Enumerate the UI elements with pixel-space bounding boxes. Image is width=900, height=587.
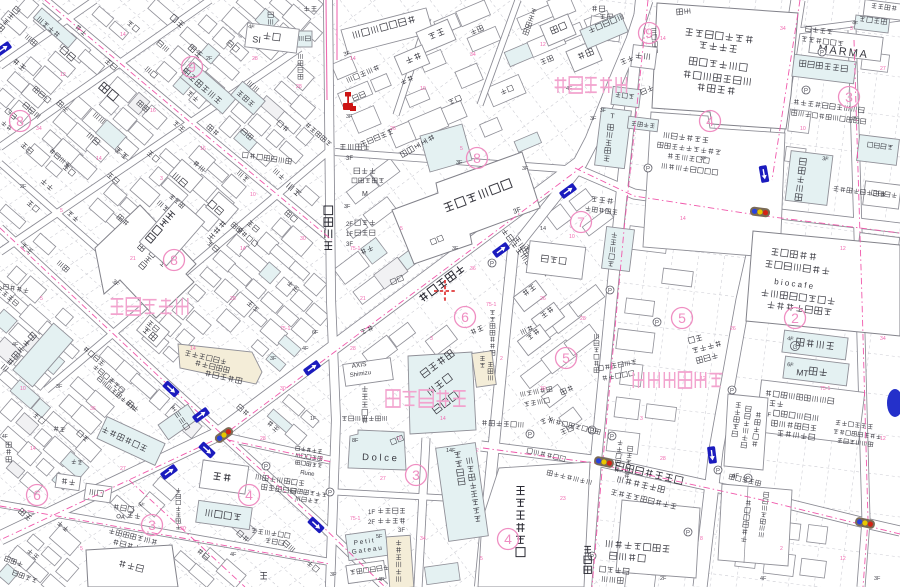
svg-text:3F: 3F [600,108,606,114]
svg-text:14: 14 [540,226,546,232]
svg-text:8F: 8F [352,438,359,444]
svg-text:10: 10 [420,86,426,92]
svg-text:14: 14 [680,216,686,222]
svg-text:14: 14 [240,246,246,252]
svg-text:21: 21 [360,296,366,302]
svg-text:8: 8 [170,252,178,268]
svg-text:28: 28 [660,456,666,462]
svg-text:2F: 2F [346,222,353,228]
svg-text:4F: 4F [378,577,385,583]
svg-text:P: P [264,463,268,470]
svg-text:G: G [793,345,798,351]
svg-text:3: 3 [148,517,156,533]
svg-text:P: P [746,475,750,482]
svg-text:16: 16 [200,146,206,152]
svg-text:P: P [686,529,690,536]
svg-text:3: 3 [850,26,853,32]
svg-text:4: 4 [245,487,253,503]
svg-text:30: 30 [280,386,286,392]
svg-text:3F: 3F [522,166,529,172]
svg-text:4: 4 [706,113,714,129]
svg-text:27: 27 [880,66,886,72]
svg-text:5: 5 [40,296,43,302]
svg-text:3F: 3F [874,576,881,582]
svg-text:3F: 3F [456,160,463,166]
svg-text:5: 5 [320,456,323,462]
svg-text:5: 5 [678,310,686,326]
svg-text:10: 10 [569,234,575,240]
svg-text:23: 23 [560,496,566,502]
svg-text:12: 12 [60,72,66,78]
svg-text:36: 36 [90,406,96,412]
svg-text:27: 27 [380,476,386,482]
svg-text:14: 14 [440,416,446,422]
svg-text:3F: 3F [56,384,63,390]
svg-text:6F: 6F [312,330,319,336]
svg-text:12: 12 [540,42,546,48]
svg-text:P: P [608,287,612,294]
svg-text:OA: OA [116,514,125,521]
svg-text:2F: 2F [368,520,375,526]
svg-text:P: P [730,387,734,394]
svg-text:P: P [655,319,659,326]
svg-text:D o l c e: D o l c e [362,452,397,464]
svg-text:14: 14 [120,32,126,38]
svg-text:4F: 4F [760,576,767,582]
svg-text:3F: 3F [700,156,707,162]
svg-text:3: 3 [430,336,433,342]
svg-text:26: 26 [730,326,736,332]
svg-text:5: 5 [400,226,403,232]
svg-text:1F: 1F [346,232,353,238]
svg-text:28: 28 [260,436,266,442]
svg-text:8: 8 [473,150,481,166]
svg-text:1F: 1F [368,510,375,516]
svg-text:3F: 3F [852,116,859,122]
svg-text:36: 36 [470,266,476,272]
svg-text:12: 12 [840,556,846,562]
svg-text:34: 34 [36,126,42,132]
svg-text:2: 2 [500,356,503,362]
svg-text:8: 8 [700,536,703,542]
svg-text:5F: 5F [376,534,383,540]
svg-text:6: 6 [461,309,469,325]
svg-text:28: 28 [252,56,258,62]
svg-text:34: 34 [880,336,886,342]
svg-text:2: 2 [791,310,799,326]
svg-text:P: P [490,260,494,267]
svg-text:P: P [804,87,808,94]
svg-text:P: P [610,433,614,440]
svg-text:4F: 4F [2,434,8,440]
svg-text:12: 12 [840,246,846,252]
svg-text:34: 34 [420,536,426,542]
svg-text:P: P [646,165,650,172]
svg-text:4: 4 [504,531,512,547]
svg-text:7: 7 [577,214,585,230]
svg-text:16: 16 [150,108,156,114]
svg-text:4F: 4F [302,346,309,352]
svg-text:3F: 3F [270,356,277,362]
svg-text:3F: 3F [452,246,459,252]
svg-text:2F: 2F [20,184,27,190]
svg-text:75-1: 75-1 [820,386,830,392]
svg-text:28: 28 [296,84,302,90]
svg-text:MT: MT [796,367,809,378]
svg-text:P: P [716,467,720,474]
svg-text:8: 8 [16,113,24,129]
svg-text:5: 5 [60,208,63,214]
svg-text:4F: 4F [12,342,19,348]
svg-text:3F: 3F [590,116,597,122]
svg-text:10: 10 [800,126,806,132]
svg-text:4F: 4F [230,552,237,558]
svg-text:75-1: 75-1 [280,326,290,332]
svg-text:14: 14 [190,346,196,352]
svg-text:2: 2 [780,546,783,552]
svg-text:28: 28 [350,346,356,352]
svg-text:26: 26 [390,126,396,132]
svg-text:2F: 2F [206,56,213,62]
svg-text:9: 9 [645,25,653,41]
svg-text:3F: 3F [398,528,405,534]
svg-text:5: 5 [460,146,463,152]
svg-text:1F: 1F [238,228,245,234]
svg-text:27: 27 [120,466,126,472]
svg-text:3: 3 [845,89,853,105]
svg-text:1F: 1F [310,416,317,422]
svg-text:34: 34 [470,52,476,58]
svg-text:3: 3 [640,416,643,422]
svg-text:2F: 2F [660,576,667,582]
svg-text:10: 10 [250,192,256,198]
svg-text:75-1: 75-1 [350,246,360,252]
svg-text:14: 14 [30,446,36,452]
svg-text:30: 30 [300,236,306,242]
svg-text:3F: 3F [346,114,353,120]
svg-text:3F: 3F [330,572,337,578]
svg-text:3: 3 [412,467,420,483]
svg-text:5: 5 [562,350,570,366]
svg-text:12: 12 [880,436,886,442]
svg-text:P: P [328,489,332,496]
svg-text:3F: 3F [344,204,351,210]
svg-text:9: 9 [188,59,196,75]
svg-text:30: 30 [540,386,546,392]
svg-text:14: 14 [96,156,102,162]
svg-text:P: P [528,431,532,438]
svg-text:75-1: 75-1 [350,516,360,522]
svg-text:3F: 3F [346,156,353,162]
svg-text:14F: 14F [446,448,456,454]
svg-text:2: 2 [476,448,479,454]
svg-text:34: 34 [780,26,786,32]
svg-text:SI: SI [252,34,262,45]
svg-text:28: 28 [230,296,236,302]
svg-text:5: 5 [480,556,483,562]
svg-text:28: 28 [580,316,586,322]
svg-text:75-1: 75-1 [486,302,496,308]
svg-text:26: 26 [540,296,546,302]
svg-text:14: 14 [350,56,356,62]
svg-text:10: 10 [20,386,26,392]
svg-text:6: 6 [33,487,41,503]
svg-text:14: 14 [660,36,666,42]
svg-text:21: 21 [130,256,136,262]
svg-text:M: M [362,191,368,198]
svg-text:P: P [820,49,824,56]
svg-text:5: 5 [80,546,83,552]
svg-text:3: 3 [160,176,163,182]
